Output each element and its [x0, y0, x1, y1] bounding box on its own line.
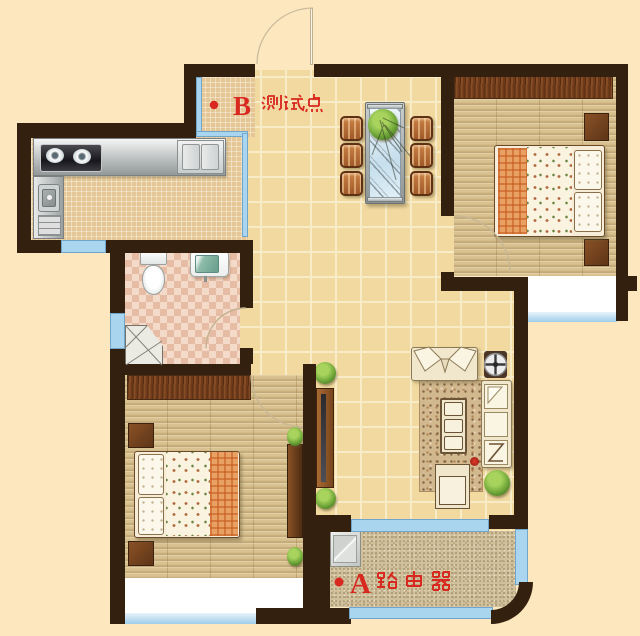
svg-text:A: A: [350, 568, 371, 600]
svg-text:B: B: [233, 91, 251, 121]
